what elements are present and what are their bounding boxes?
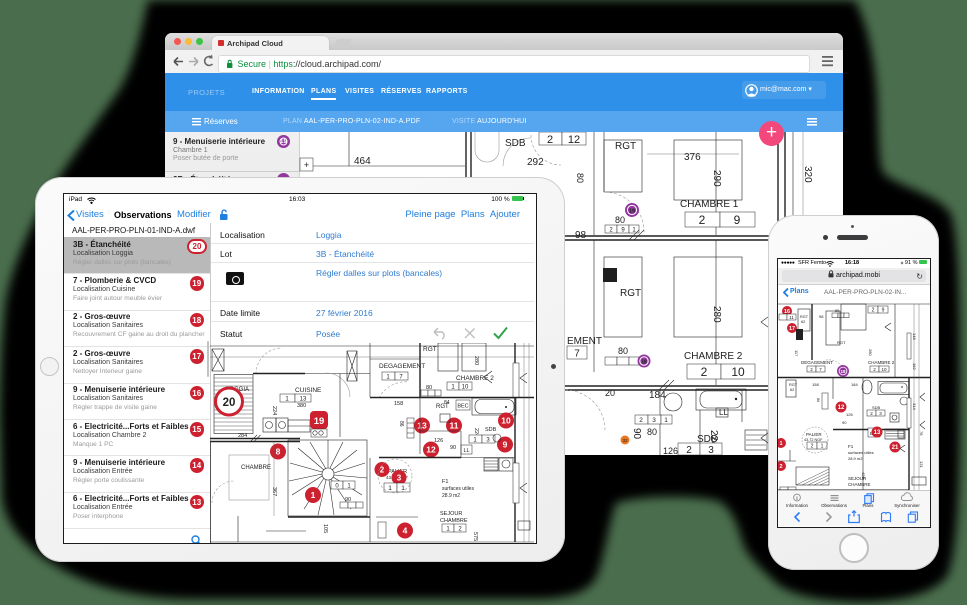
- svg-text:280: 280: [868, 349, 873, 356]
- svg-text:Information: Information: [786, 503, 809, 508]
- svg-text:SEJOUR: SEJOUR: [440, 511, 462, 517]
- svg-text:62: 62: [801, 320, 805, 324]
- svg-text:131: 131: [919, 461, 924, 468]
- svg-text:90: 90: [450, 445, 456, 451]
- svg-text:2: 2: [686, 445, 692, 455]
- svg-text:RGT: RGT: [837, 340, 846, 345]
- svg-text:10: 10: [881, 367, 887, 372]
- svg-text:80: 80: [618, 346, 628, 356]
- svg-text:376: 376: [684, 152, 701, 163]
- svg-text:13: 13: [417, 420, 427, 430]
- svg-text:CHAMBRE 1: CHAMBRE 1: [680, 199, 739, 210]
- svg-text:2: 2: [701, 365, 708, 379]
- svg-text:320: 320: [802, 166, 813, 183]
- svg-text:9: 9: [734, 213, 741, 227]
- svg-text:80: 80: [575, 173, 585, 183]
- svg-text:3: 3: [708, 445, 714, 455]
- svg-text:DEGAGEMENT: DEGAGEMENT: [801, 360, 833, 365]
- svg-text:2: 2: [811, 444, 814, 450]
- svg-text:RGT: RGT: [800, 315, 809, 319]
- svg-text:8: 8: [276, 446, 281, 456]
- svg-text:162: 162: [912, 363, 917, 370]
- svg-text:1: 1: [664, 417, 668, 424]
- svg-text:1: 1: [821, 444, 824, 450]
- svg-text:13: 13: [874, 430, 881, 436]
- svg-text:126: 126: [846, 412, 853, 417]
- svg-text:2: 2: [779, 464, 782, 470]
- svg-text:SDB: SDB: [505, 138, 526, 149]
- svg-text:1: 1: [779, 441, 782, 447]
- svg-text:LL: LL: [463, 448, 469, 454]
- svg-text:284: 284: [238, 433, 247, 439]
- svg-text:CHAMBRE 2: CHAMBRE 2: [868, 360, 895, 365]
- svg-text:7: 7: [574, 349, 580, 360]
- svg-text:CHAMBRE: CHAMBRE: [848, 482, 871, 487]
- svg-text:117: 117: [794, 350, 799, 357]
- svg-text:surfaces utiles: surfaces utiles: [848, 450, 874, 455]
- svg-text:2: 2: [639, 417, 643, 424]
- svg-text:158: 158: [812, 382, 819, 387]
- svg-text:86: 86: [398, 421, 404, 427]
- svg-text:148: 148: [912, 333, 917, 340]
- svg-text:9: 9: [882, 308, 885, 314]
- svg-text:CHAMBRE: CHAMBRE: [440, 518, 468, 524]
- svg-text:32: 32: [622, 438, 628, 443]
- svg-text:292: 292: [527, 157, 544, 168]
- svg-text:184: 184: [649, 390, 666, 401]
- svg-text:28.9 m2: 28.9 m2: [442, 493, 460, 499]
- svg-text:CHAMBRE 2: CHAMBRE 2: [684, 351, 743, 362]
- svg-text:280: 280: [711, 306, 722, 323]
- svg-text:2: 2: [872, 308, 875, 314]
- svg-text:98: 98: [819, 314, 824, 319]
- svg-text:90: 90: [631, 428, 642, 440]
- svg-text:i: i: [796, 496, 797, 502]
- svg-text:28.9 m2: 28.9 m2: [848, 456, 863, 461]
- svg-text:3: 3: [652, 417, 656, 424]
- svg-text:SDB: SDB: [872, 405, 881, 410]
- svg-text:11: 11: [450, 420, 459, 430]
- svg-text:12: 12: [838, 405, 845, 411]
- svg-text:SDB: SDB: [485, 427, 497, 433]
- svg-text:11: 11: [789, 315, 794, 320]
- svg-text:78: 78: [919, 431, 924, 436]
- svg-text:86: 86: [816, 398, 820, 402]
- svg-text:surfaces utiles: surfaces utiles: [442, 486, 474, 492]
- svg-text:84: 84: [444, 400, 450, 406]
- svg-text:DEGAGEMENT: DEGAGEMENT: [379, 363, 425, 370]
- svg-text:290: 290: [711, 170, 722, 187]
- svg-text:12: 12: [426, 444, 436, 454]
- svg-text:90: 90: [842, 420, 847, 425]
- svg-text:184: 184: [851, 382, 858, 387]
- svg-text:+: +: [304, 160, 309, 170]
- svg-text:13: 13: [300, 396, 307, 402]
- svg-text:43.72 NGF: 43.72 NGF: [804, 438, 823, 442]
- svg-text:380: 380: [297, 403, 306, 409]
- svg-text:Observations: Observations: [821, 503, 848, 508]
- svg-text:158: 158: [394, 401, 403, 407]
- svg-text:21: 21: [892, 445, 899, 451]
- svg-text:CHAMBRE 2: CHAMBRE 2: [456, 375, 494, 382]
- svg-text:20: 20: [605, 388, 615, 398]
- svg-text:EMENT: EMENT: [567, 336, 602, 347]
- svg-text:18: 18: [840, 369, 846, 374]
- svg-text:18: 18: [641, 360, 647, 366]
- svg-text:Synchroniser: Synchroniser: [894, 503, 920, 508]
- svg-text:429: 429: [861, 472, 866, 479]
- svg-text:105: 105: [322, 524, 328, 533]
- svg-text:126: 126: [663, 446, 678, 455]
- svg-text:F1: F1: [848, 444, 854, 449]
- svg-text:RGT: RGT: [615, 141, 636, 152]
- svg-text:RGT: RGT: [620, 288, 641, 299]
- svg-text:280: 280: [473, 356, 479, 365]
- svg-text:PALIER: PALIER: [806, 432, 822, 437]
- svg-text:19: 19: [629, 209, 635, 215]
- svg-text:80: 80: [615, 215, 625, 225]
- svg-text:Plans: Plans: [863, 503, 875, 508]
- svg-text:3: 3: [397, 473, 402, 482]
- svg-text:F1: F1: [442, 479, 448, 485]
- svg-text:LL: LL: [719, 408, 728, 417]
- svg-text:2: 2: [547, 134, 553, 146]
- svg-text:80: 80: [647, 427, 657, 437]
- svg-text:575: 575: [472, 532, 478, 541]
- svg-text:9: 9: [503, 439, 508, 449]
- svg-text:CUISINE: CUISINE: [295, 387, 322, 394]
- svg-text:RGT: RGT: [423, 346, 437, 353]
- svg-text:1: 1: [388, 485, 392, 492]
- svg-text:10: 10: [501, 415, 511, 425]
- svg-text:BEC: BEC: [457, 403, 468, 409]
- svg-text:19: 19: [314, 416, 325, 427]
- svg-text:10: 10: [462, 384, 469, 390]
- svg-text:17: 17: [789, 326, 795, 332]
- svg-text:62: 62: [790, 388, 794, 392]
- svg-text:2: 2: [380, 465, 385, 474]
- svg-text:464: 464: [354, 156, 371, 167]
- svg-text:1: 1: [311, 490, 316, 500]
- svg-text:224: 224: [271, 406, 277, 415]
- svg-text:314: 314: [912, 403, 917, 410]
- svg-text:10: 10: [731, 365, 745, 379]
- svg-text:2: 2: [699, 213, 706, 227]
- svg-text:126: 126: [434, 438, 443, 444]
- svg-text:4: 4: [403, 525, 408, 535]
- svg-text:12: 12: [568, 134, 580, 146]
- svg-text:20: 20: [223, 397, 236, 409]
- svg-text:RGT: RGT: [789, 383, 798, 387]
- svg-text:CHAMBRE: CHAMBRE: [241, 465, 271, 471]
